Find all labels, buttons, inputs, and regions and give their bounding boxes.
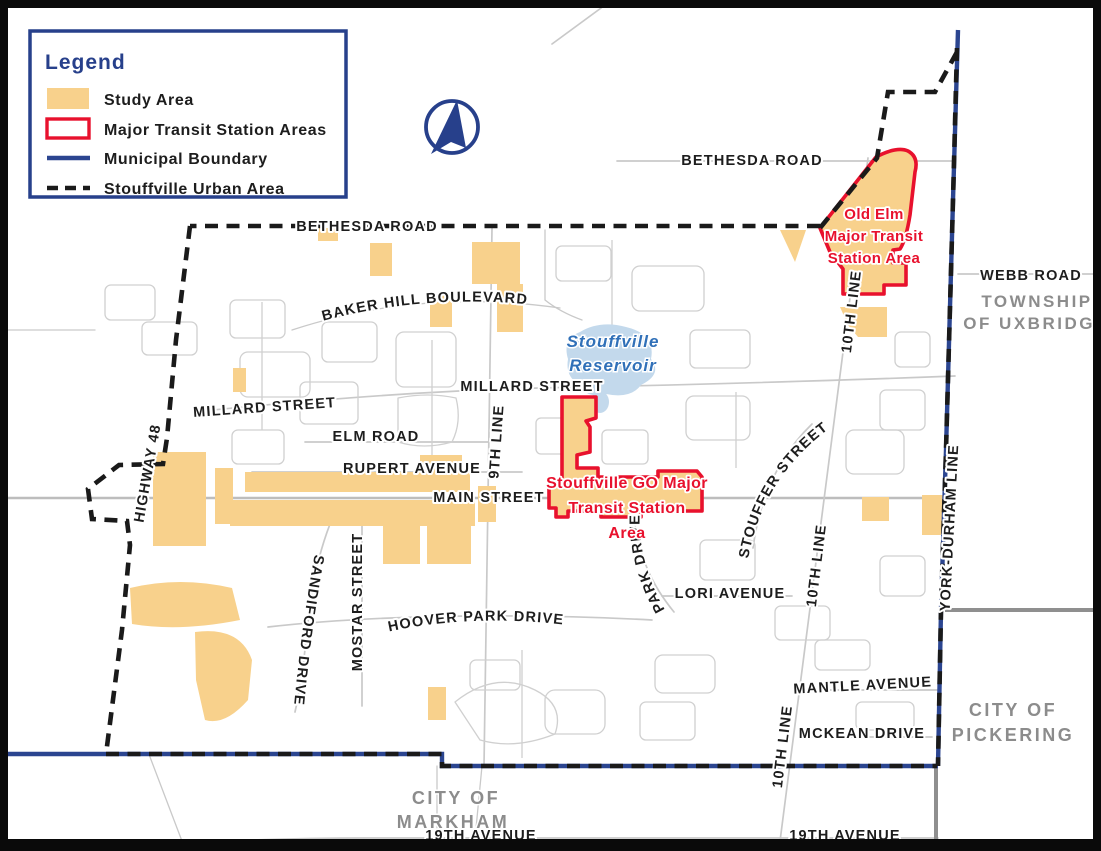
frame-left <box>0 0 8 851</box>
study-area-polygon <box>428 687 446 720</box>
road-label-elm-road: ELM ROAD <box>333 429 420 445</box>
study-area-polygon <box>370 243 392 276</box>
study-area-fill-swatch <box>47 88 89 109</box>
jurisdiction-label-uxbridge-1: TOWNSHIP <box>981 292 1092 311</box>
road-label-webb: WEBB ROAD <box>980 268 1082 284</box>
jurisdiction-label-uxbridge-2: OF UXBRIDGE <box>963 314 1101 333</box>
road-label-main-street: MAIN STREET <box>433 490 544 506</box>
study-area-polygon <box>862 497 889 521</box>
old-elm-mtsa-label-3: Station Area <box>828 250 921 267</box>
study-area-polygon <box>472 242 520 284</box>
red-outline-swatch <box>47 119 89 138</box>
road-label-rupert: RUPERT AVENUE <box>343 461 481 477</box>
study-area-polygon <box>427 518 471 564</box>
road-label-mckean: MCKEAN DRIVE <box>799 726 925 742</box>
legend-item-label: Stouffville Urban Area <box>104 181 285 198</box>
frame-top <box>0 0 1101 8</box>
legend-box: Legend Study Area Major Transit Station … <box>30 31 346 198</box>
legend-item-label: Municipal Boundary <box>104 151 268 168</box>
legend-item-label: Study Area <box>104 92 194 109</box>
study-area-polygon <box>383 518 420 564</box>
go-mtsa-label-1: Stouffville GO Major <box>546 475 708 492</box>
stouffville-mtsa-map: BETHESDA ROAD BETHESDA ROAD BAKER HILL B… <box>0 0 1101 851</box>
study-area-polygon <box>922 495 943 535</box>
jurisdiction-label-pickering-1: CITY OF <box>969 700 1057 720</box>
water-label-line1: Stouffville <box>567 332 660 351</box>
road-label-lori: LORI AVENUE <box>675 586 786 602</box>
old-elm-mtsa-label-1: Old Elm <box>844 206 903 223</box>
go-mtsa-label-3: Area <box>608 525 645 542</box>
study-area-polygon <box>130 582 240 627</box>
jurisdiction-label-pickering-2: PICKERING <box>952 725 1075 745</box>
jurisdiction-label-markham-2: MARKHAM <box>397 812 509 832</box>
road-label-millard-center: MILLARD STREET <box>460 379 603 395</box>
water-label-line2: Reservoir <box>569 356 657 375</box>
frame-right <box>1093 0 1101 851</box>
old-elm-mtsa-label-2: Major Transit <box>825 228 924 245</box>
study-area-polygon <box>233 368 246 392</box>
north-arrow-icon <box>426 100 478 154</box>
road-label-bethesda-top: BETHESDA ROAD <box>681 153 823 169</box>
map-canvas: BETHESDA ROAD BETHESDA ROAD BAKER HILL B… <box>0 0 1101 851</box>
road-label-mostar: MOSTAR STREET <box>350 533 366 672</box>
legend-title: Legend <box>45 51 126 74</box>
go-mtsa-label-2: Transit Station <box>568 500 685 517</box>
road-label-bethesda-boundary: BETHESDA ROAD <box>296 219 438 235</box>
jurisdiction-label-markham-1: CITY OF <box>412 788 500 808</box>
frame-bottom <box>0 839 1101 851</box>
legend-item-label: Major Transit Station Areas <box>104 122 327 139</box>
